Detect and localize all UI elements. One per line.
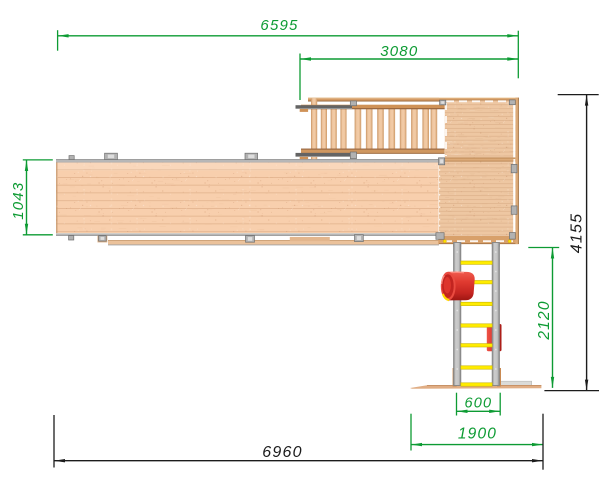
svg-text:2120: 2120 [536,300,553,340]
svg-text:1043: 1043 [10,182,27,220]
svg-text:3080: 3080 [380,43,418,60]
svg-text:4155: 4155 [569,213,586,253]
svg-text:6595: 6595 [260,17,298,34]
svg-text:600: 600 [465,396,493,412]
svg-text:1900: 1900 [458,426,497,443]
svg-text:6960: 6960 [262,444,302,461]
